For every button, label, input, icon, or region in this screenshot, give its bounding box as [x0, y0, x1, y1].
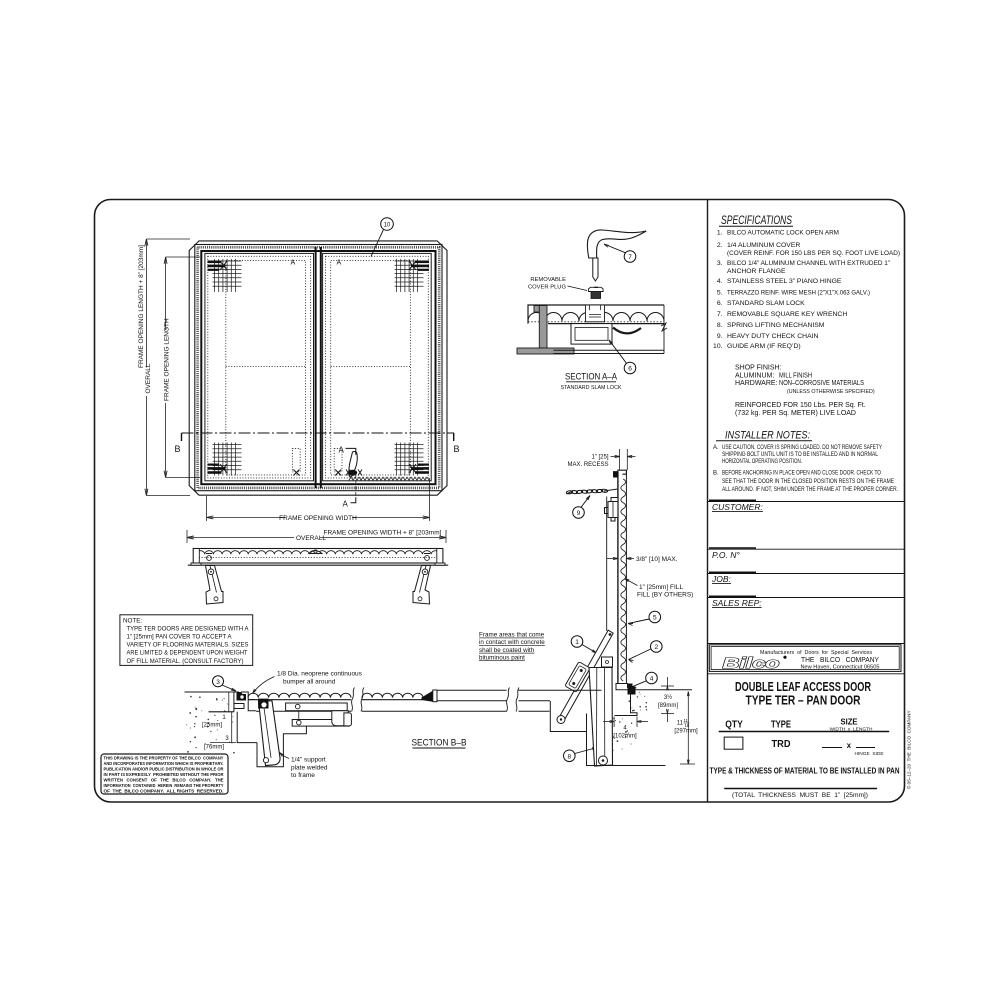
svg-text:ARE LIMITED & DEPENDENT UPON W: ARE LIMITED & DEPENDENT UPON WEIGHT: [127, 650, 248, 657]
svg-text:1/8 Dia. neoprene continuous: 1/8 Dia. neoprene continuous: [277, 671, 363, 678]
svg-text:B.: B.: [713, 471, 719, 477]
svg-text:TERRAZZO REINF. WIRE MESH (2”X: TERRAZZO REINF. WIRE MESH (2”X1”X.063 GA…: [727, 290, 870, 297]
svg-text:STAINLESS STEEL 3” PIANO HINGE: STAINLESS STEEL 3” PIANO HINGE: [727, 278, 842, 285]
svg-text:OVERALL: OVERALL: [296, 535, 326, 542]
svg-text:8.: 8.: [717, 322, 723, 329]
svg-text:[76mm]: [76mm]: [204, 745, 224, 751]
svg-text:to frame: to frame: [291, 772, 315, 779]
svg-text:2.: 2.: [717, 242, 723, 249]
svg-text:SEE THAT THE DOOR IN THE CLOSE: SEE THAT THE DOOR IN THE CLOSED POSITION…: [722, 479, 894, 485]
svg-text:PUBLICATION AND/OR PUBLIC DIST: PUBLICATION AND/OR PUBLIC DISTRIBUTION I…: [104, 767, 225, 772]
svg-text:NOTE:: NOTE:: [123, 617, 142, 624]
svg-text:7: 7: [628, 254, 632, 261]
svg-text:1” [25]: 1” [25]: [591, 454, 608, 460]
svg-text:IN PART IS EXPRESSLY PROHIBIT: IN PART IS EXPRESSLY PROHIBITED WITHOUT …: [104, 772, 225, 777]
svg-text:A: A: [337, 260, 342, 267]
svg-text:in contact with concrete: in contact with concrete: [479, 639, 545, 646]
svg-text:1/4 ALUMINUM COVER: 1/4 ALUMINUM COVER: [727, 242, 800, 249]
svg-text:INFORMATION CONTAINED HEREIN: INFORMATION CONTAINED HEREIN REMAINS THE…: [104, 783, 224, 788]
svg-text:MAX. RECESS: MAX. RECESS: [567, 462, 608, 468]
svg-text:FILL (BY OTHERS): FILL (BY OTHERS): [637, 592, 693, 599]
svg-text:9.: 9.: [717, 333, 723, 340]
svg-text:STANDARD SLAM LOCK: STANDARD SLAM LOCK: [727, 300, 805, 307]
svg-text:© 05–12–20 THE BILCO COMPAN: © 05–12–20 THE BILCO COMPANY: [906, 710, 912, 789]
svg-text:CUSTOMER:: CUSTOMER:: [712, 502, 763, 512]
svg-text:FRAME OPENING LENGTH: FRAME OPENING LENGTH: [163, 318, 170, 401]
svg-text:OVERALL: OVERALL: [145, 363, 152, 393]
svg-text:FRAME OPENING LENGTH + 8” [203: FRAME OPENING LENGTH + 8” [203mm]: [138, 245, 145, 368]
svg-text:SHOP FINISH:: SHOP FINISH:: [735, 365, 782, 372]
svg-text:WRITTEN CONSENT OF THE: WRITTEN CONSENT OF THE BILCO COMPANY. TH…: [104, 778, 224, 783]
svg-text:INSTALLER NOTES:: INSTALLER NOTES:: [725, 430, 810, 442]
svg-text:Frame areas that come: Frame areas that come: [479, 632, 545, 639]
svg-text:[25mm]: [25mm]: [202, 723, 222, 729]
svg-text:USE CAUTION. COVER IS SPRING L: USE CAUTION. COVER IS SPRING LOADED. DO …: [722, 445, 882, 451]
svg-text:1/4” support: 1/4” support: [291, 757, 326, 764]
svg-text:1” [25mm] FILL: 1” [25mm] FILL: [639, 584, 683, 591]
svg-text:THE BILCO COMPANY: THE BILCO COMPANY: [801, 655, 879, 664]
svg-text:SECTION B–B: SECTION B–B: [412, 738, 467, 748]
svg-text:16: 16: [685, 723, 690, 728]
svg-text:OF THE BILCO COMPANY. ALL R: OF THE BILCO COMPANY. ALL RIGHTS RESERVE…: [104, 789, 224, 794]
svg-text:SHIPPING BOLT UNTIL UNIT IS TO: SHIPPING BOLT UNTIL UNIT IS TO BE INSTAL…: [722, 452, 879, 458]
svg-text:TYPE: TYPE: [771, 720, 791, 731]
svg-text:(TOTAL THICKNESS MUST BE 1: (TOTAL THICKNESS MUST BE 1” [25mm]): [732, 792, 868, 799]
svg-text:New Haven, Connecticut 06505: New Haven, Connecticut 06505: [801, 664, 880, 670]
svg-text:8: 8: [567, 753, 571, 760]
svg-text:TYPE & THICKNESS OF MATERIAL T: TYPE & THICKNESS OF MATERIAL TO BE INSTA…: [710, 767, 900, 776]
svg-text:A.: A.: [713, 445, 719, 451]
svg-text:bumper all around: bumper all around: [283, 678, 336, 685]
svg-text:HINGE SIDE: HINGE SIDE: [854, 751, 883, 757]
svg-text:1.: 1.: [717, 230, 723, 237]
svg-text:5.: 5.: [717, 290, 723, 297]
svg-text:1” [25mm] PAN COVER TO ACCEPT: 1” [25mm] PAN COVER TO ACCEPT A: [127, 634, 233, 641]
svg-text:ANCHOR FLANGE: ANCHOR FLANGE: [727, 268, 786, 275]
svg-text:6: 6: [628, 366, 632, 373]
svg-text:B: B: [174, 444, 180, 454]
svg-text:Bilco: Bilco: [723, 656, 780, 672]
svg-text:1: 1: [575, 639, 579, 646]
svg-text:P.O. N°: P.O. N°: [712, 550, 740, 560]
svg-text:BILCO AUTOMATIC LOCK OPEN ARM: BILCO AUTOMATIC LOCK OPEN ARM: [727, 230, 839, 237]
svg-text:SIZE: SIZE: [841, 717, 858, 727]
svg-text:2: 2: [654, 644, 658, 651]
svg-text:FRAME OPENING WIDTH + 8” [203m: FRAME OPENING WIDTH + 8” [203mm]: [324, 530, 442, 537]
svg-text:4.: 4.: [717, 278, 723, 285]
svg-text:HEAVY DUTY CHECK CHAIN: HEAVY DUTY CHECK CHAIN: [727, 333, 818, 340]
svg-text:SPRING LIFTING MECHANISM: SPRING LIFTING MECHANISM: [727, 322, 825, 329]
svg-text:REMOVABLE SQUARE KEY WRENCH: REMOVABLE SQUARE KEY WRENCH: [727, 311, 847, 318]
svg-text:JOB:: JOB:: [711, 574, 732, 584]
svg-text:B: B: [453, 444, 459, 454]
svg-text:5: 5: [653, 615, 657, 622]
svg-text:SALES REP:: SALES REP:: [712, 598, 762, 608]
svg-text:VARIETY OF FLOORING MATERIALS.: VARIETY OF FLOORING MATERIALS. SIZES: [127, 642, 249, 649]
svg-text:SPECIFICATIONS: SPECIFICATIONS: [721, 215, 792, 227]
svg-text:SECTION A–A: SECTION A–A: [565, 372, 618, 382]
svg-text:10: 10: [384, 223, 391, 229]
svg-text:BEFORE ANCHORING IN PLACE OPEN: BEFORE ANCHORING IN PLACE OPEN AND CLOSE…: [722, 471, 881, 477]
svg-text:3: 3: [216, 679, 220, 686]
svg-text:4: 4: [650, 676, 654, 683]
svg-text:x: x: [847, 741, 852, 750]
svg-text:BILCO 1/4” ALUMINUM CHANNEL WI: BILCO 1/4” ALUMINUM CHANNEL WITH EXTRUDE…: [727, 260, 891, 267]
svg-text:[89mm]: [89mm]: [658, 703, 678, 709]
svg-text:shall be coated with: shall be coated with: [479, 647, 535, 654]
svg-text:ALUMINUM:: ALUMINUM:: [735, 372, 774, 379]
svg-text:OF FILL MATERIAL. (CONSULT FAC: OF FILL MATERIAL. (CONSULT FACTORY): [127, 658, 244, 665]
svg-text:9: 9: [577, 510, 581, 517]
svg-text:FRAME OPENING WIDTH: FRAME OPENING WIDTH: [279, 515, 357, 522]
svg-text:REINFORCED FOR 150 Lbs. PER Sq: REINFORCED FOR 150 Lbs. PER Sq. Ft.: [735, 402, 866, 409]
svg-text:[297mm]: [297mm]: [674, 729, 698, 735]
svg-text:TYPE TER DOORS ARE DESIGNED WI: TYPE TER DOORS ARE DESIGNED WITH A: [127, 625, 250, 632]
svg-text:REMOVABLE: REMOVABLE: [530, 277, 566, 283]
svg-text:plate welded: plate welded: [291, 764, 328, 771]
svg-text:10.: 10.: [713, 343, 723, 350]
svg-text:HARDWARE:: HARDWARE:: [735, 380, 778, 387]
svg-text:7.: 7.: [717, 311, 723, 318]
svg-text:THIS DRAWING IS THE PROPERTY O: THIS DRAWING IS THE PROPERTY OF THE BILC…: [104, 756, 224, 761]
svg-text:ALL AROUND. IF NOT, SHIM UNDER: ALL AROUND. IF NOT, SHIM UNDER THE FRAME…: [722, 487, 898, 493]
svg-text:NON–CORROSIVE MATERIALS: NON–CORROSIVE MATERIALS: [779, 380, 864, 387]
svg-text:A: A: [343, 500, 349, 509]
svg-text:A: A: [291, 260, 296, 267]
svg-text:AND INCORPORATES INFORMATION W: AND INCORPORATES INFORMATION WHICH IS PR…: [104, 761, 224, 766]
svg-text:GUIDE ARM (IF REQ’D): GUIDE ARM (IF REQ’D): [727, 343, 801, 350]
svg-text:(UNLESS OTHERWISE SPECIFIED): (UNLESS OTHERWISE SPECIFIED): [787, 389, 875, 395]
svg-text:HORIZONTAL OPERATING POSITION.: HORIZONTAL OPERATING POSITION.: [722, 459, 802, 465]
svg-text:3.: 3.: [717, 260, 723, 267]
svg-text:MILL FINISH: MILL FINISH: [779, 372, 812, 379]
svg-text:(732 kg. PER Sq. METER) LIVE L: (732 kg. PER Sq. METER) LIVE LOAD: [735, 410, 856, 417]
svg-text:6.: 6.: [717, 300, 723, 307]
svg-text:[102mm]: [102mm]: [613, 734, 637, 740]
svg-text:(COVER REINF. FOR 150 LBS PER: (COVER REINF. FOR 150 LBS PER SQ. FOOT L…: [727, 250, 900, 257]
svg-text:TYPE TER – PAN DOOR: TYPE TER – PAN DOOR: [746, 693, 861, 708]
svg-text:TRD: TRD: [772, 739, 791, 750]
svg-text:3/8” [10] MAX.: 3/8” [10] MAX.: [636, 556, 678, 563]
svg-text:QTY: QTY: [725, 720, 743, 731]
svg-text:bituminous paint: bituminous paint: [479, 654, 525, 661]
svg-text:COVER PLUG: COVER PLUG: [528, 285, 567, 291]
svg-text:3½: 3½: [664, 694, 672, 701]
svg-text:STANDARD SLAM LOCK: STANDARD SLAM LOCK: [561, 385, 622, 391]
svg-text:A: A: [339, 446, 345, 455]
